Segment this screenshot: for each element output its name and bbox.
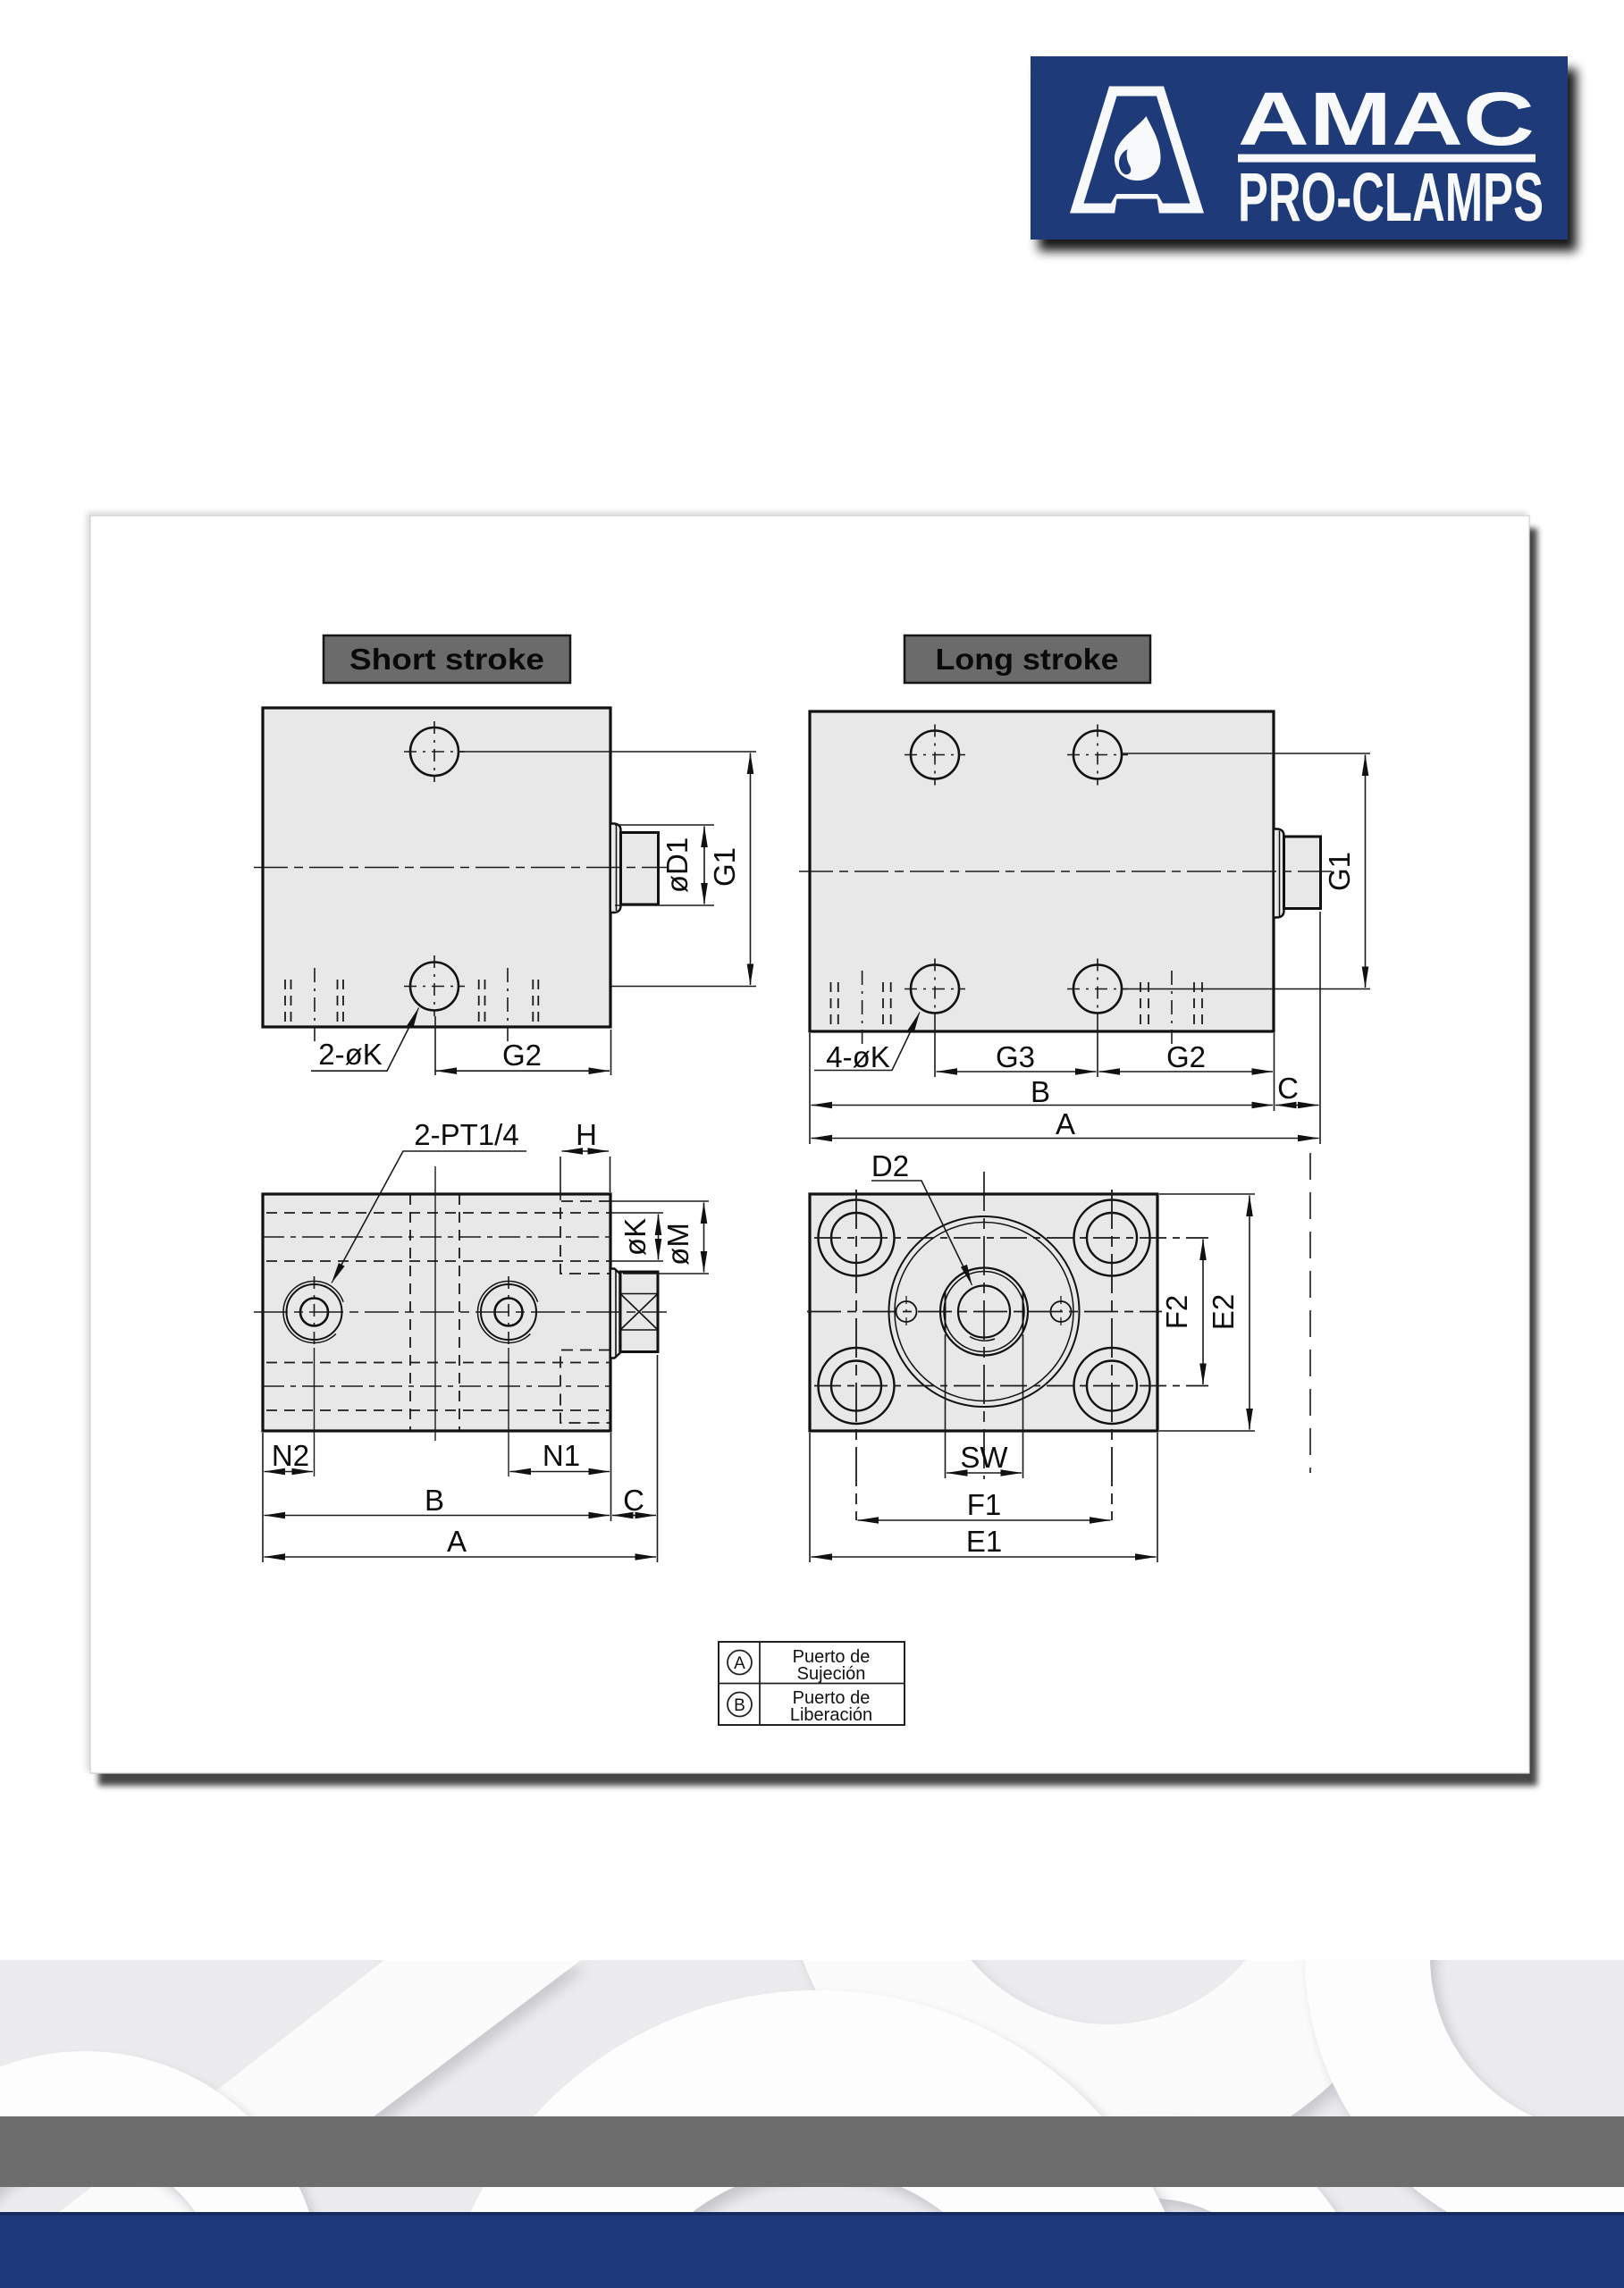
svg-text:2-PT1/4: 2-PT1/4 [414, 1118, 518, 1151]
svg-text:C: C [623, 1484, 644, 1517]
svg-text:D2: D2 [871, 1149, 909, 1182]
svg-text:N2: N2 [272, 1439, 309, 1472]
svg-text:A: A [447, 1525, 467, 1558]
svg-text:B: B [425, 1484, 444, 1517]
svg-text:F2: F2 [1160, 1295, 1193, 1330]
svg-text:PRO-CLAMPS: PRO-CLAMPS [1238, 159, 1544, 236]
svg-text:H: H [576, 1118, 597, 1151]
svg-text:A: A [734, 1654, 745, 1673]
svg-text:G2: G2 [502, 1039, 542, 1072]
svg-text:Long stroke: Long stroke [936, 643, 1119, 676]
svg-text:AMAC: AMAC [1238, 77, 1535, 161]
svg-text:øD1: øD1 [661, 837, 694, 893]
svg-text:øK: øK [618, 1218, 652, 1256]
svg-text:Liberación: Liberación [790, 1705, 872, 1725]
svg-text:G2: G2 [1166, 1040, 1206, 1073]
svg-text:B: B [734, 1696, 745, 1715]
svg-text:F1: F1 [967, 1488, 1002, 1521]
svg-text:C: C [1277, 1072, 1299, 1105]
svg-text:SW: SW [960, 1441, 1008, 1474]
svg-text:N1: N1 [543, 1439, 580, 1472]
svg-text:Short stroke: Short stroke [349, 643, 544, 676]
svg-text:Sujeción: Sujeción [797, 1664, 866, 1684]
svg-text:E1: E1 [966, 1525, 1002, 1558]
svg-text:øM: øM [661, 1223, 694, 1266]
svg-text:2-øK: 2-øK [318, 1038, 383, 1071]
svg-text:G1: G1 [708, 847, 741, 887]
svg-text:G1: G1 [1323, 852, 1356, 891]
svg-text:A: A [1056, 1107, 1075, 1140]
svg-text:4-øK: 4-øK [826, 1040, 890, 1073]
svg-text:B: B [1031, 1075, 1050, 1108]
svg-text:E2: E2 [1207, 1294, 1240, 1330]
svg-text:G3: G3 [996, 1040, 1035, 1073]
